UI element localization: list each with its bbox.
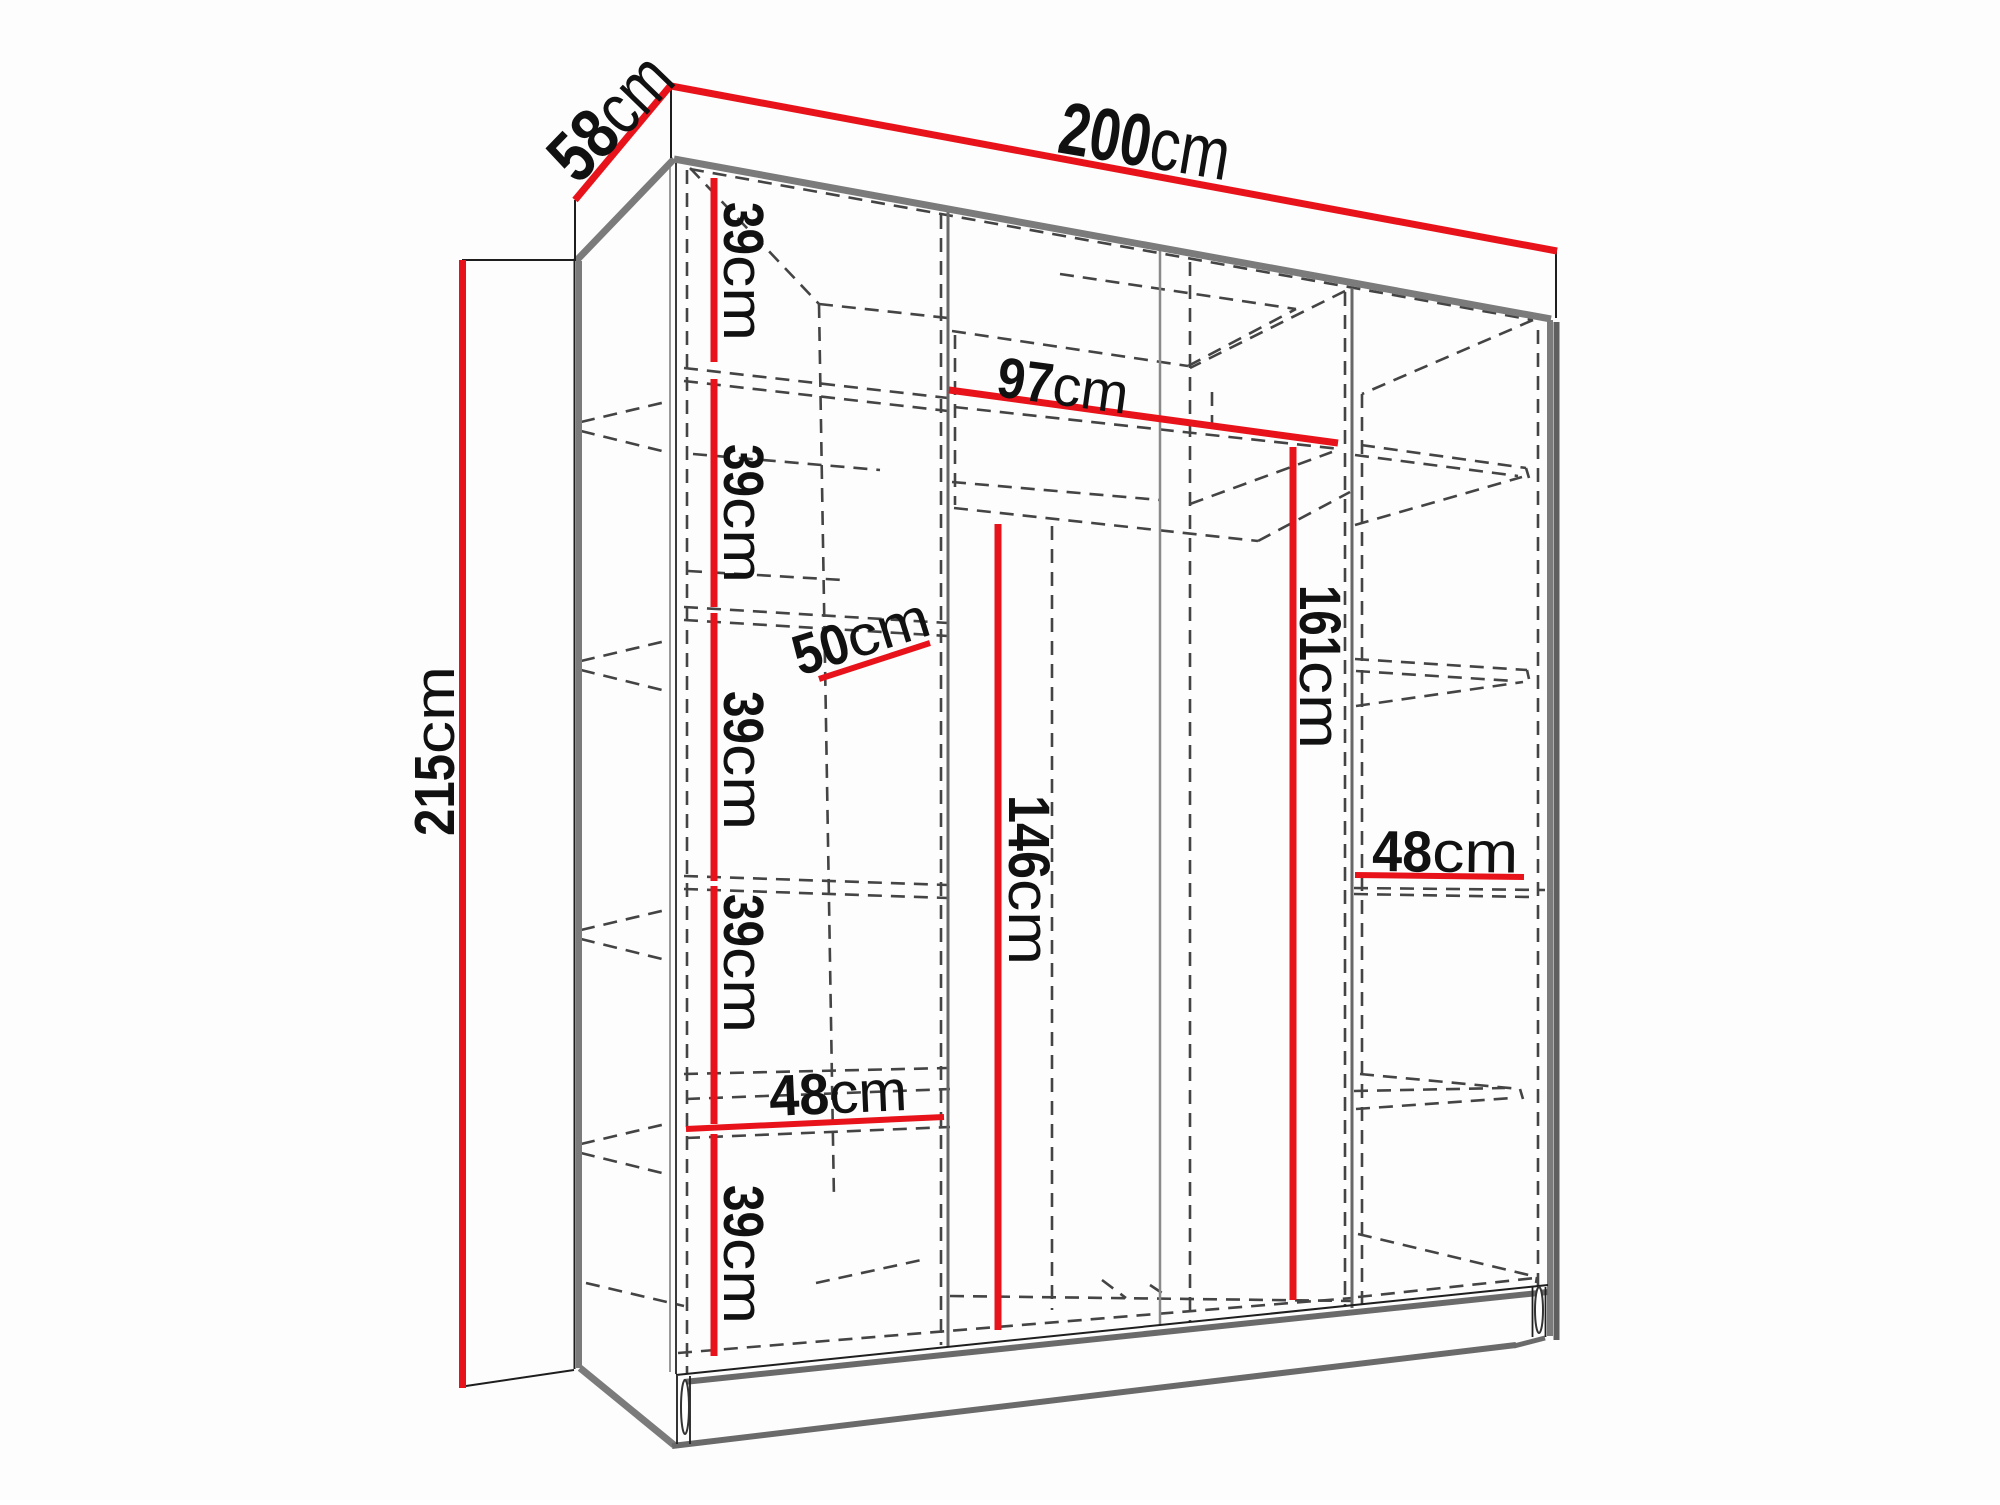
svg-text:146cm: 146cm — [996, 795, 1061, 965]
svg-text:215cm: 215cm — [403, 666, 467, 836]
svg-text:39cm: 39cm — [711, 1185, 775, 1324]
svg-text:39cm: 39cm — [711, 444, 775, 583]
svg-text:39cm: 39cm — [711, 202, 775, 341]
svg-text:161cm: 161cm — [1287, 585, 1352, 749]
svg-text:39cm: 39cm — [711, 691, 775, 830]
svg-text:48cm: 48cm — [1372, 819, 1519, 886]
svg-text:39cm: 39cm — [711, 894, 775, 1033]
svg-text:48cm: 48cm — [768, 1058, 909, 1129]
